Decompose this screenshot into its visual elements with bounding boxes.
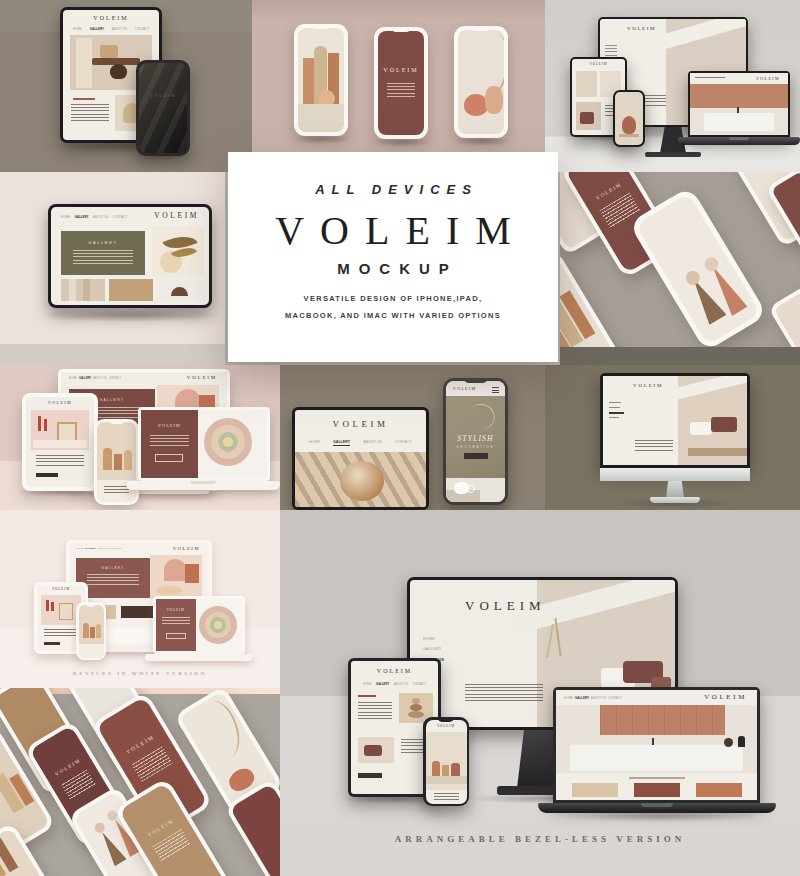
nav-item: GALLERY xyxy=(333,440,350,446)
nav-item: CONTACT xyxy=(608,696,622,700)
nav-item: GALLERY xyxy=(423,644,444,654)
scene-white-version: HOME GALLERY ABOUT US CONTACT VOLEIM GAL… xyxy=(0,510,280,688)
laptop-display: HOME GALLERY ABOUT US CONTACT VOLEIM xyxy=(556,690,757,800)
laptop-screen: HOME GALLERY ABOUT US CONTACT VOLEIM xyxy=(553,687,760,803)
voleim-logo: VOLEIM xyxy=(26,400,94,405)
phone-screen xyxy=(97,422,136,502)
bowls-image xyxy=(199,606,237,644)
pots-image xyxy=(426,732,467,790)
nav-item: ABOUT US xyxy=(93,215,108,219)
maroon-panel: VOLEIM xyxy=(156,599,196,651)
thumbnail-image xyxy=(61,279,105,301)
scene-top-left: VOLEIM HOME GALLERY ABOUT US CONTACT xyxy=(0,0,252,172)
phone-mockup: VOLEIM xyxy=(423,717,469,806)
kitchen-image xyxy=(690,84,788,135)
abstract-image xyxy=(150,555,202,599)
read-more-button xyxy=(464,453,488,459)
glass-bowl-image xyxy=(295,452,426,507)
tablet-screen: VOLEIM xyxy=(26,397,94,487)
phone-screen-cones xyxy=(635,193,760,345)
maroon-panel: VOLEIM xyxy=(141,410,198,478)
tablet-mockup: VOLEIM HOME GALLERY ABOUT US CONTACT xyxy=(292,407,429,510)
nav-item: ABOUT US xyxy=(112,27,127,31)
voleim-logo: VOLEIM xyxy=(37,587,85,591)
tablet-mockup: VOLEIM xyxy=(22,393,98,491)
card-subtitle: MOCKUP xyxy=(228,260,558,277)
nav-item: CONTACT xyxy=(113,215,127,219)
nav-menu: HOME GALLERY ABOUT US CONTACT xyxy=(61,215,127,219)
laptop-display: VOLEIM xyxy=(690,73,788,135)
bezel-less-caption: ARRANGEABLE BEZEL-LESS VERSION xyxy=(280,834,800,844)
nav-item: CONTACT xyxy=(413,682,426,686)
phone-mockup: VOLEIM xyxy=(374,27,428,139)
phone-mockup-stylish: VOLEIM STYLISH DECORATION xyxy=(443,378,508,505)
monitor-foot xyxy=(645,152,701,157)
laptop-screen: VOLEIM xyxy=(688,71,790,137)
nav-item: HOME xyxy=(363,682,371,686)
voleim-logo: VOLEIM xyxy=(139,93,187,98)
scene-imac: VOLEIM xyxy=(545,365,800,510)
laptop-base xyxy=(126,481,280,490)
nav-item: GALLERY xyxy=(376,682,389,686)
leaf-image xyxy=(152,227,204,277)
voleim-logo: VOLEIM xyxy=(704,693,747,701)
voleim-logo: VOLEIM xyxy=(187,375,217,380)
voleim-logo: VOLEIM xyxy=(633,383,663,388)
pillow-image xyxy=(358,737,394,763)
phone-mockup xyxy=(294,24,348,136)
thumbnail-image xyxy=(109,279,153,301)
kitchen-image xyxy=(556,705,757,773)
nav-item: GALLERY xyxy=(84,547,95,550)
menu-icon xyxy=(492,387,499,395)
nav-item: GALLERY xyxy=(79,377,91,380)
card-desc-line2: MACBOOK, AND IMAC WITH VARIED OPTIONS xyxy=(228,308,558,325)
nav-item: ABOUT US xyxy=(97,547,109,550)
nav-menu: HOME GALLERY ABOUT US CONTACT xyxy=(309,440,412,446)
phone-screen-ceramics xyxy=(298,28,344,132)
phone-mockup xyxy=(629,186,768,352)
stylish-hero-image: STYLISH DECORATION xyxy=(446,396,505,478)
scene-three-phones: VOLEIM xyxy=(252,0,545,172)
title-card: ALL DEVICES VOLEIM MOCKUP VERSATILE DESI… xyxy=(228,152,558,362)
nav-menu: HOME GALLERY ABOUT US CONTACT xyxy=(76,547,122,550)
voleim-logo: VOLEIM xyxy=(627,26,656,31)
nav-item: HOME xyxy=(61,215,70,219)
voleim-logo: VOLEIM xyxy=(154,211,199,220)
scene-tilted-phones: VOLEIM xyxy=(560,172,800,365)
phone-screen: VOLEIM xyxy=(426,720,467,804)
shadow xyxy=(560,810,760,822)
phone-header: VOLEIM xyxy=(446,381,505,396)
card-desc-line1: VERSATILE DESIGN OF IPHONE,IPAD, xyxy=(228,291,558,308)
phone-screen-stylish: VOLEIM STYLISH DECORATION xyxy=(446,381,505,502)
bedroom-image xyxy=(678,376,747,465)
gallery-panel: GALLERY xyxy=(61,231,145,275)
nav-item: HOME xyxy=(309,440,320,446)
scene-tablet-stylish-phone: VOLEIM HOME GALLERY ABOUT US CONTACT VOL… xyxy=(280,365,545,510)
button xyxy=(358,773,382,778)
card-title: VOLEIM xyxy=(228,207,558,254)
laptop-display: VOLEIM xyxy=(156,599,242,651)
thumbnail-image xyxy=(572,783,618,797)
laptop-screen-white: VOLEIM xyxy=(153,596,245,654)
laptop-base xyxy=(145,654,253,661)
nav-item: GALLERY xyxy=(90,27,104,31)
card-kicker: ALL DEVICES xyxy=(228,182,558,197)
phone-mockup-white xyxy=(76,602,106,660)
nav-menu: HOME GALLERY ABOUT US CONTACT xyxy=(69,377,121,380)
imac-chin xyxy=(600,468,750,481)
voleim-logo: VOLEIM xyxy=(453,386,476,391)
nav-item: GALLERY xyxy=(74,215,88,219)
scene-responsive-set: VOLEIM VOLEIM xyxy=(545,0,800,172)
voleim-logo: VOLEIM xyxy=(572,62,625,66)
nav-item: HOME xyxy=(69,377,77,380)
nav-item: HOME xyxy=(73,27,82,31)
nav-menu: HOME GALLERY ABOUT US CONTACT xyxy=(363,682,426,686)
phone-mockup xyxy=(613,90,645,147)
scene-device-cluster: HOME GALLERY ABOUT US CONTACT VOLEIM GAL… xyxy=(0,365,280,510)
nav-menu: HOME GALLERY ABOUT US CONTACT xyxy=(564,696,622,700)
thumbnail-image xyxy=(696,783,742,797)
white-version-caption: DEVICES IN WHITE VERSION xyxy=(0,671,280,676)
nav-item: CONTACT xyxy=(109,377,121,380)
laptop-display: VOLEIM xyxy=(141,410,267,478)
stylish-line1: STYLISH xyxy=(446,434,505,443)
nav-item: HOME xyxy=(76,547,83,550)
tablet-screen: HOME GALLERY ABOUT US CONTACT VOLEIM GAL… xyxy=(51,207,209,305)
still-life-image xyxy=(31,410,89,450)
nav-item: HOME xyxy=(423,634,444,644)
voleim-logo: VOLEIM xyxy=(378,67,424,73)
voleim-logo: VOLEIM xyxy=(465,598,546,614)
phone-screen-vase xyxy=(458,30,504,134)
gallery-heading: GALLERY xyxy=(61,240,145,245)
nav-item: ABOUT US xyxy=(394,682,408,686)
phone-screen-dark: VOLEIM xyxy=(139,63,187,153)
nav-item: CONTACT xyxy=(111,547,122,550)
imac-foot xyxy=(650,497,700,503)
phone-screen-maroon: VOLEIM xyxy=(378,31,424,135)
stylish-line2: DECORATION xyxy=(446,445,505,449)
laptop-screen: VOLEIM xyxy=(138,407,270,481)
imac-screen: VOLEIM xyxy=(600,373,750,468)
card-description: VERSATILE DESIGN OF IPHONE,IPAD, MACBOOK… xyxy=(228,291,558,324)
voleim-logo: VOLEIM xyxy=(63,15,159,21)
voleim-logo: VOLEIM xyxy=(756,76,780,81)
scene-bezel-less: VOLEIM HOME GALLERY ABOUT US CONTACT VOL… xyxy=(280,510,800,876)
mug-image xyxy=(446,478,505,502)
imac-display: VOLEIM xyxy=(603,376,747,465)
tablet-mockup-landscape: HOME GALLERY ABOUT US CONTACT VOLEIM GAL… xyxy=(48,204,212,308)
voleim-logo: VOLEIM xyxy=(351,668,438,674)
scene-landscape-tablet: HOME GALLERY ABOUT US CONTACT VOLEIM GAL… xyxy=(0,172,225,365)
nav-item: ABOUT US xyxy=(363,440,381,446)
nav-item: CONTACT xyxy=(135,27,149,31)
bowls-image xyxy=(204,418,252,466)
phone-screen xyxy=(615,92,643,145)
nav-menu: HOME GALLERY ABOUT US CONTACT xyxy=(73,27,149,31)
phone-mockup-dark: VOLEIM xyxy=(136,60,190,156)
voleim-logo: VOLEIM xyxy=(141,423,198,428)
shadow xyxy=(38,308,222,322)
phone-screen xyxy=(79,605,104,658)
voleim-logo: VOLEIM xyxy=(173,546,200,551)
voleim-logo: VOLEIM xyxy=(426,724,467,728)
voleim-mockup-collage: VOLEIM HOME GALLERY ABOUT US CONTACT xyxy=(0,0,800,876)
voleim-logo: VOLEIM xyxy=(156,608,196,612)
nav-item: GALLERY xyxy=(575,696,589,700)
still-life-image xyxy=(41,595,81,625)
phone-mockup xyxy=(94,419,139,505)
nav-item: CONTACT xyxy=(395,440,412,446)
dark-banner xyxy=(121,606,157,618)
nav-item: ABOUT US xyxy=(93,377,106,380)
nav-item: ABOUT US xyxy=(591,696,606,700)
thumbnail-image xyxy=(634,783,680,797)
thumbnail-image xyxy=(157,279,204,301)
nav-item: HOME xyxy=(564,696,573,700)
scene-phone-flatlay: VOLEIM VOLEIM xyxy=(0,688,280,876)
phone-mockup xyxy=(454,26,508,138)
imac-stand xyxy=(666,481,684,498)
gallery-heading: GALLERY xyxy=(76,566,150,570)
laptop-base xyxy=(678,137,800,145)
tablet-screen: VOLEIM HOME GALLERY ABOUT US CONTACT xyxy=(295,410,426,507)
voleim-logo: VOLEIM xyxy=(295,419,426,429)
